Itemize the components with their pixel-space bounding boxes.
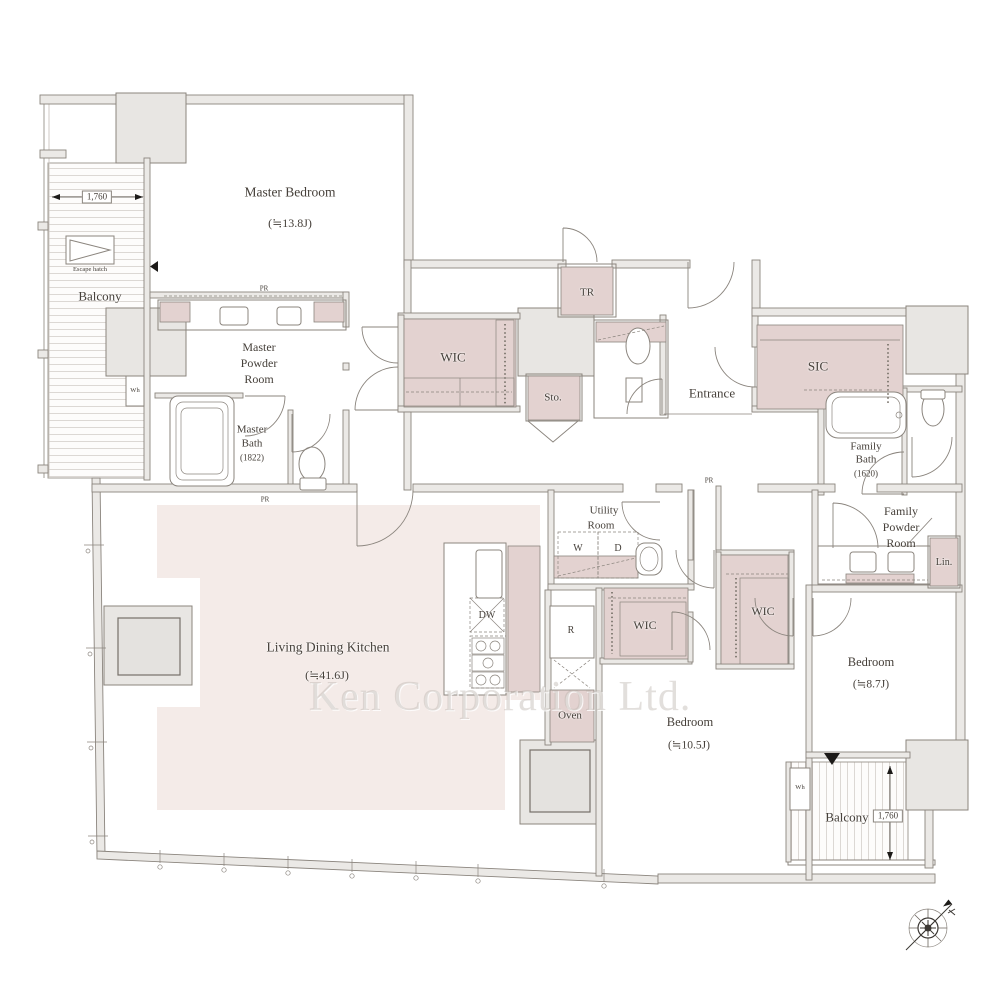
floor-plan: Ken Corporation Ltd. Master Bedroom (≒13…	[0, 0, 1000, 1000]
balcony-right-label: Balcony	[825, 811, 868, 824]
family-bath-label-2: Bath	[856, 455, 877, 466]
linen-label: Lin.	[936, 558, 952, 568]
washer-label: W	[573, 544, 582, 554]
bedroom3-size: (≒8.7J)	[853, 679, 889, 691]
master-bath-label-1: Master	[237, 425, 268, 436]
wic-bedroom2-label: WIC	[633, 619, 656, 631]
sic-label: SIC	[808, 360, 828, 373]
family-powder-room-label-2: Powder	[883, 521, 920, 533]
family-powder-room-label-1: Family	[884, 505, 918, 517]
master-bedroom-size: (≒13.8J)	[268, 217, 312, 229]
dishwasher-label: DW	[479, 611, 496, 621]
utility-room-label-1: Utility	[590, 506, 619, 517]
watermark: Ken Corporation Ltd.	[309, 673, 692, 721]
master-powder-room-label-3: Room	[244, 373, 273, 385]
water-heater-right-label: Wh	[795, 785, 804, 792]
ldk-size: (≒41.6J)	[305, 669, 349, 681]
floorplan-drawing	[0, 0, 1000, 1000]
refrigerator-label: R	[568, 626, 575, 636]
bedroom2-label: Bedroom	[667, 716, 714, 729]
master-powder-room-label-2: Powder	[241, 357, 278, 369]
trunk-room-label: TR	[580, 288, 594, 299]
wic-bedroom3-label: WIC	[751, 605, 774, 617]
family-bath-size: (1620)	[854, 470, 878, 479]
master-powder-room-label-1: Master	[242, 341, 275, 353]
water-heater-left-label: Wh	[130, 388, 139, 395]
family-powder-room-label-3: Room	[886, 537, 915, 549]
ldk-label: Living Dining Kitchen	[267, 640, 390, 654]
dryer-label: D	[614, 544, 621, 554]
entrance-label: Entrance	[689, 387, 735, 400]
oven-label: Oven	[558, 711, 582, 722]
compass-icon	[906, 900, 955, 951]
wic-master-label: WIC	[440, 351, 465, 364]
family-bath-label-1: Family	[850, 442, 881, 453]
pipe-rack-label-2: PR	[261, 497, 270, 504]
storage-label: Sto.	[544, 393, 561, 404]
master-bath-size: (1822)	[240, 454, 264, 463]
escape-hatch-label: Escape hatch	[73, 267, 107, 274]
pipe-rack-label-1: PR	[260, 286, 269, 293]
balcony-left-dimension: 1,760	[82, 191, 112, 204]
balcony-right-dimension: 1,760	[873, 810, 903, 823]
pipe-rack-label-3: PR	[705, 478, 714, 485]
master-bath-label-2: Bath	[242, 439, 263, 450]
utility-room-label-2: Room	[588, 521, 615, 532]
balcony-left-label: Balcony	[78, 290, 121, 303]
master-bedroom-label: Master Bedroom	[244, 185, 335, 199]
bedroom2-size: (≒10.5J)	[668, 740, 710, 752]
bedroom3-label: Bedroom	[848, 656, 895, 669]
